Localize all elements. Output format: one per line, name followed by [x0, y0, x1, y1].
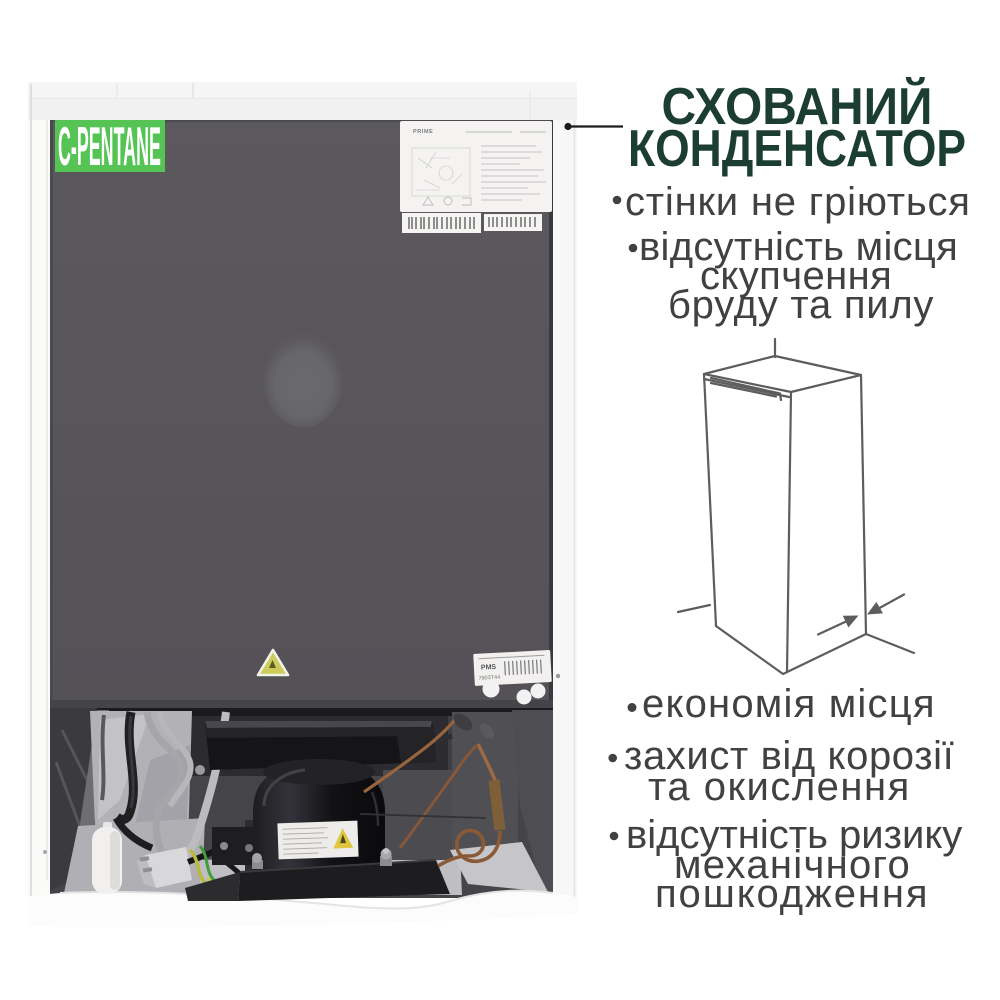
svg-text:PRIME: PRIME [413, 129, 433, 135]
svg-text:PMS: PMS [481, 664, 497, 672]
svg-text:C-PENTANE: C-PENTANE [58, 115, 161, 177]
